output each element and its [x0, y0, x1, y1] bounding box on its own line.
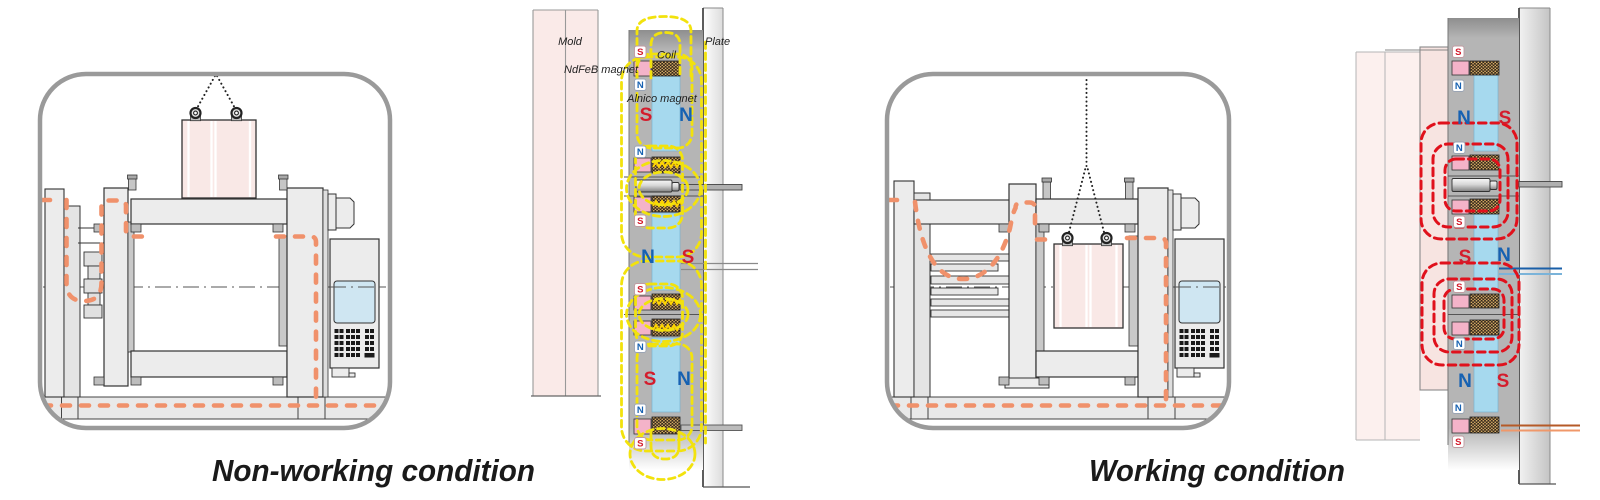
svg-text:S: S [682, 247, 695, 268]
svg-text:NdFeB magnet: NdFeB magnet [564, 64, 639, 76]
svg-text:N: N [677, 369, 691, 390]
svg-text:N: N [641, 247, 655, 268]
svg-text:Coil: Coil [657, 50, 677, 62]
svg-text:N: N [1457, 108, 1471, 129]
svg-text:Non-working condition: Non-working condition [212, 453, 535, 488]
svg-text:S: S [1459, 247, 1472, 268]
svg-text:Mold: Mold [558, 36, 583, 48]
svg-text:N: N [679, 105, 693, 126]
svg-text:S: S [640, 105, 653, 126]
svg-text:N: N [1458, 371, 1472, 392]
svg-text:S: S [1497, 371, 1510, 392]
svg-text:Plate: Plate [705, 36, 730, 48]
svg-text:S: S [644, 369, 657, 390]
svg-text:Working condition: Working condition [1089, 453, 1345, 488]
svg-text:N: N [1497, 245, 1511, 266]
svg-text:Alnico magnet: Alnico magnet [626, 93, 698, 105]
svg-text:S: S [1499, 108, 1512, 129]
